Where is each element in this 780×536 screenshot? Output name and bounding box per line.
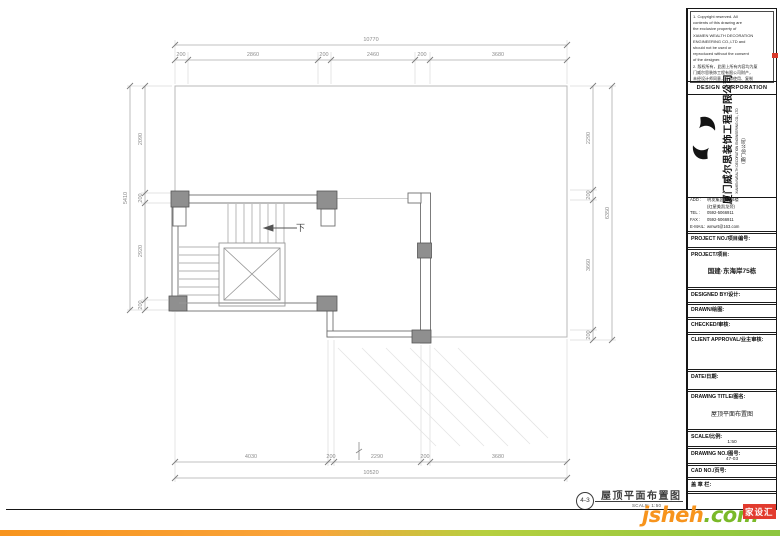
dim-left-seg: 2090 [138,133,144,145]
drawing-no-value: 47-03 [688,457,776,462]
dim-bottom-total: 10520 [363,470,378,476]
dim-top-seg: 3680 [492,52,504,58]
field-label: CHECKED/审核: [688,320,776,328]
general-notes: 1. Copyright reserved. All contents of t… [690,11,774,83]
dim-top-seg: 2460 [367,52,379,58]
dim-left-seg: 200 [138,193,144,202]
company-name-en: XIAMEN WEALTH DECORATION ENGINEERING CO.… [735,98,739,204]
edge-red-mark [772,53,778,58]
dimension-ticks [127,42,615,481]
field-cad-no: CAD NO./页号: [688,463,776,477]
company-name-cn: 厦门威尔思装饰工程有限公司 [720,98,734,204]
dim-bottom-seg: 200 [326,454,335,460]
dim-top-total: 10770 [363,37,378,43]
columns [169,191,432,343]
contact-value: wmwrt@163.com [707,224,739,231]
contact-row: TEL : 0592-5066911 [690,210,775,217]
stair-treads [179,204,284,303]
break-mark [356,442,362,460]
drawing-title-value: 屋顶平面布置图 [688,409,776,418]
field-label: CLIENT APPROVAL/业主审核: [688,335,776,343]
dim-bottom-seg: 3680 [492,454,504,460]
dim-right-seg: 3660 [586,259,592,271]
field-drawn: DRAWN/绘图: [688,302,776,317]
contact-value: 0592-5066911 [707,210,734,217]
dim-bottom-seg: 2290 [371,454,383,460]
field-label: PROJECT/项目: [688,250,776,258]
skylight-shaft [219,243,285,306]
dim-right-seg: 200 [586,190,592,199]
field-label: CAD NO./页号: [688,466,776,474]
dim-top-seg: 200 [319,52,328,58]
watermark-badge: 家设汇 [743,504,776,519]
field-label: DRAWN/绘图: [688,305,776,313]
field-label: PROJECT NO./项目编号: [688,234,776,242]
company-logo-icon [691,116,717,160]
field-label: DATE/日期: [688,372,776,380]
roof-outline [175,86,567,337]
dim-left-total: 5410 [123,192,129,204]
contact-row: E-MAIL: wmwrt@163.com [690,224,775,231]
dim-left-seg: 200 [138,300,144,309]
company-name-block: 厦门威尔思装饰工程有限公司 XIAMEN WEALTH DECORATION E… [720,98,747,204]
dim-top-seg: 200 [176,52,185,58]
dim-bottom-seg: 4030 [245,454,257,460]
contact-value: 0592-5066911 [707,217,734,224]
walls [172,193,431,343]
stair-down-label: 下 [296,221,305,234]
drawing-sheet: { "titleblock": { "notes": "1. Copyright… [0,0,780,536]
watermark-color-strip [0,530,780,536]
field-scale: SCALE/比例: 1:50 [688,429,776,446]
sheet-number-bubble: 4-3 [576,492,594,510]
field-client-approval: CLIENT APPROVAL/业主审核: [688,332,776,369]
contact-label: TEL : [690,210,707,217]
dim-right-seg: 200 [586,330,592,339]
stair-direction-arrow [264,225,297,231]
roof-plan-drawing [0,0,780,536]
field-label: DESIGNED BY/设计: [688,290,776,298]
dim-top-seg: 200 [417,52,426,58]
field-label: DRAWING TITLE/图名: [688,392,776,400]
contact-label: E-MAIL: [690,224,707,231]
field-drawing-title: DRAWING TITLE/图名: 屋顶平面布置图 [688,389,776,429]
sheet-title-underline [595,501,683,502]
field-drawing-no: DRAWING NO./图号: 47-03 [688,446,776,463]
field-date: DATE/日期: [688,369,776,389]
dim-right-seg: 2290 [586,132,592,144]
dim-right-total: 6350 [605,207,611,219]
extension-lines [127,40,616,482]
contact-row: FAX : 0592-5066911 [690,217,775,224]
field-project: PROJECT/项目: 国建·东海岸75栋 [688,247,776,287]
field-designed-by: DESIGNED BY/设计: [688,287,776,302]
dim-top-seg: 2860 [247,52,259,58]
dimension-lines [130,45,612,478]
watermark-name: jsheh [642,503,703,527]
company-branch: （厦门总公司） [741,98,747,204]
contact-label: FAX : [690,217,707,224]
project-name: 国建·东海岸75栋 [688,265,776,275]
field-project-no: PROJECT NO./项目编号: [688,231,776,247]
contact-label: ADD : [690,197,707,210]
dim-left-seg: 2920 [138,245,144,257]
scale-value: 1:50 [688,440,776,445]
field-checked: CHECKED/审核: [688,317,776,332]
dim-bottom-seg: 200 [420,454,429,460]
roof-slope-hatch [338,348,548,446]
watermark: jsheh.com 家设汇 [642,503,758,527]
